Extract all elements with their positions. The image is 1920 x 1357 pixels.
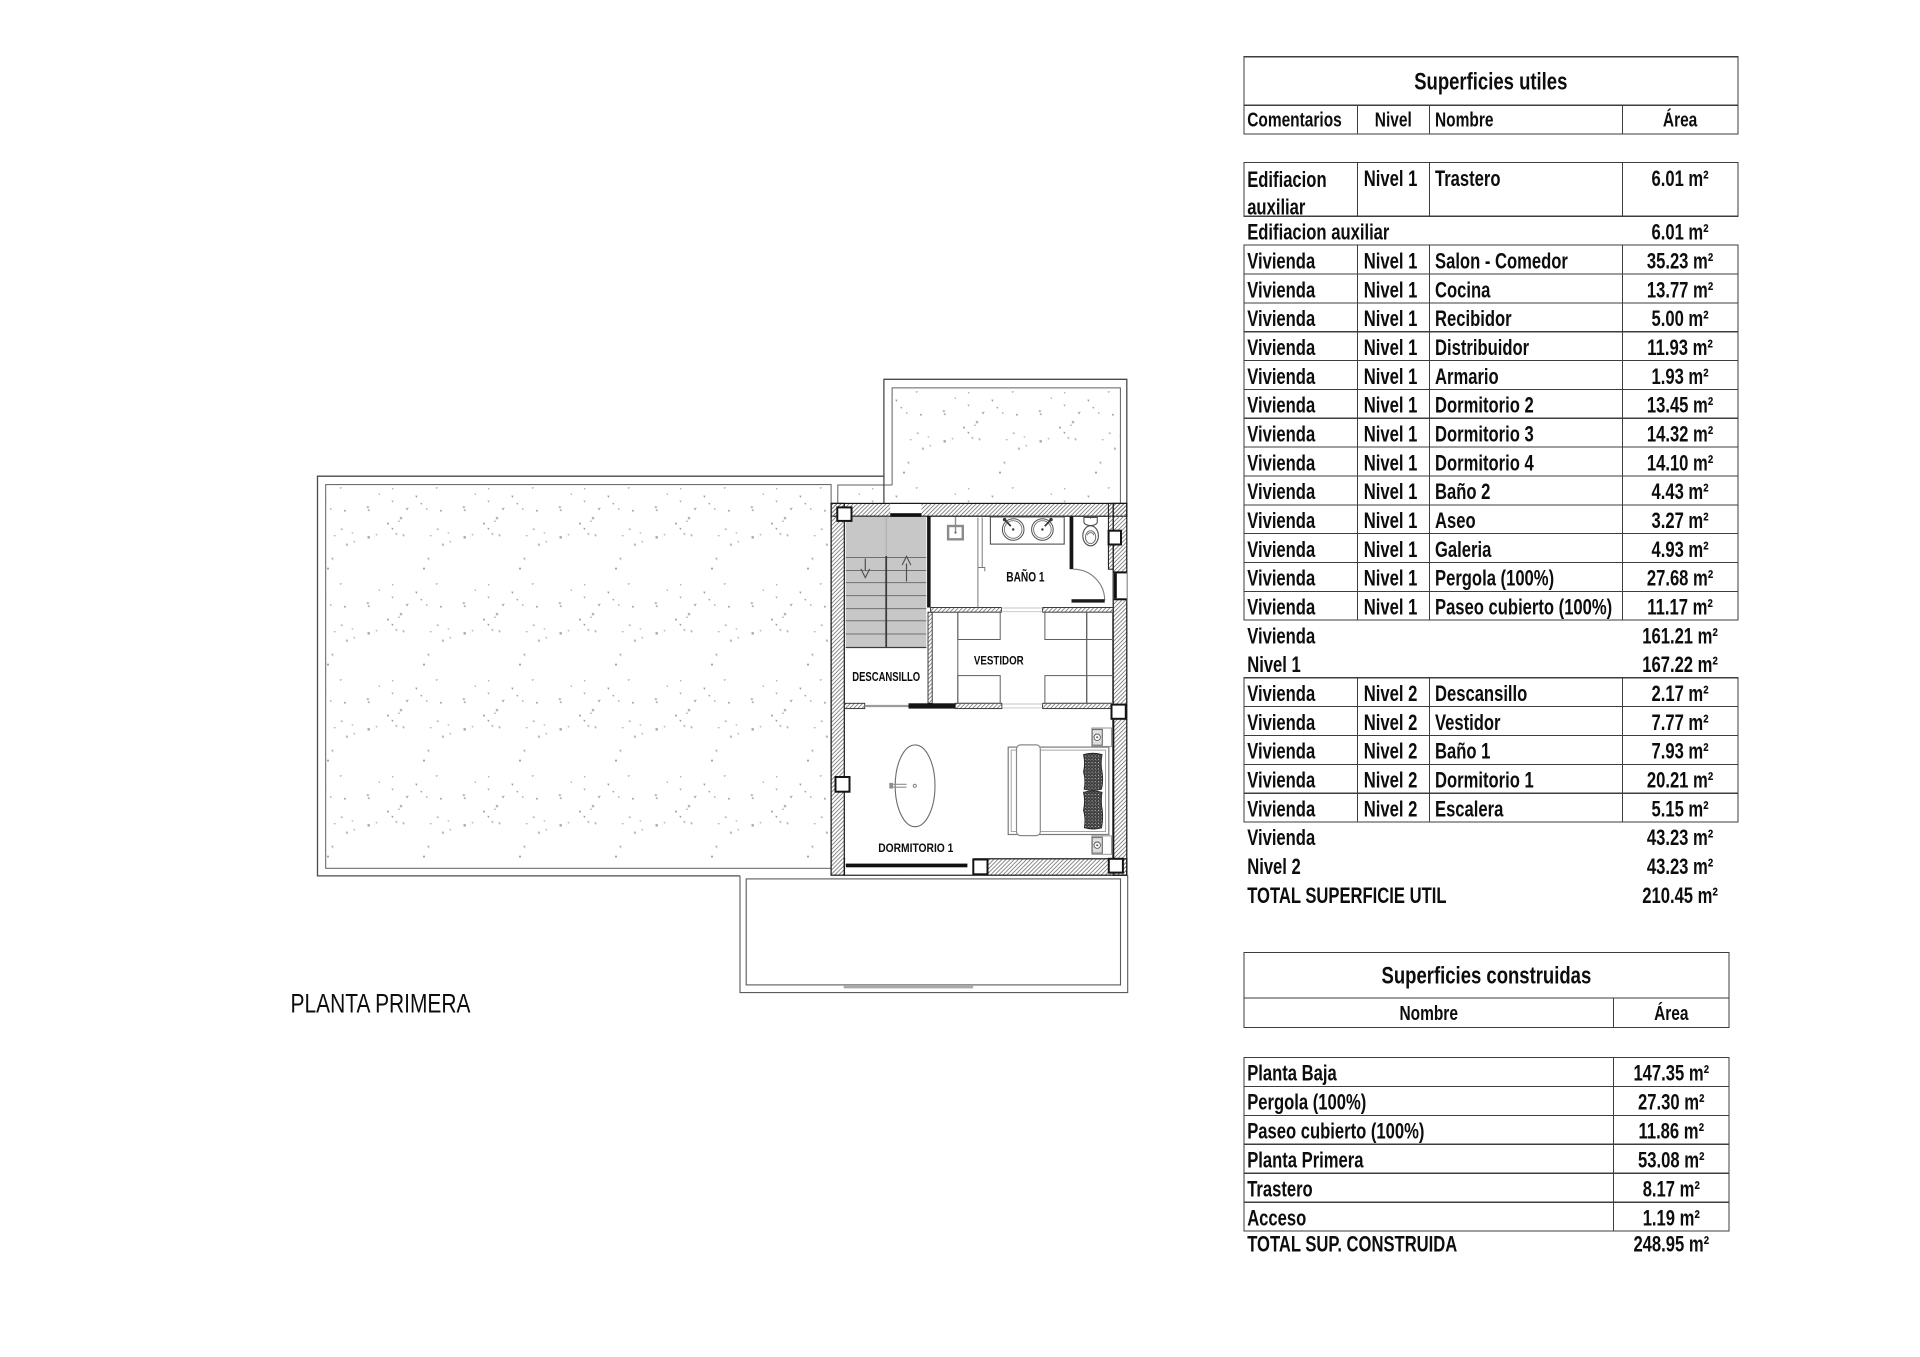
svg-text:Nivel 2: Nivel 2 bbox=[1364, 681, 1418, 706]
svg-text:Paseo cubierto (100%): Paseo cubierto (100%) bbox=[1247, 1119, 1424, 1144]
svg-text:Dormitorio 4: Dormitorio 4 bbox=[1435, 450, 1534, 475]
svg-text:2.17 m²: 2.17 m² bbox=[1652, 681, 1709, 706]
svg-text:Paseo cubierto (100%): Paseo cubierto (100%) bbox=[1435, 595, 1612, 620]
svg-text:11.93 m²: 11.93 m² bbox=[1647, 335, 1713, 360]
svg-text:Superficies construidas: Superficies construidas bbox=[1382, 963, 1592, 990]
svg-text:Escalera: Escalera bbox=[1435, 796, 1504, 821]
svg-text:35.23 m²: 35.23 m² bbox=[1647, 248, 1714, 273]
svg-text:Nivel 1: Nivel 1 bbox=[1364, 479, 1418, 504]
svg-text:Aseo: Aseo bbox=[1435, 508, 1476, 533]
svg-text:Vivienda: Vivienda bbox=[1247, 450, 1316, 475]
svg-text:Vivienda: Vivienda bbox=[1247, 248, 1316, 273]
svg-text:PLANTA PRIMERA: PLANTA PRIMERA bbox=[291, 989, 471, 1019]
svg-text:Nivel 1: Nivel 1 bbox=[1364, 566, 1418, 591]
svg-text:161.21 m²: 161.21 m² bbox=[1642, 623, 1718, 648]
svg-text:4.43 m²: 4.43 m² bbox=[1652, 479, 1709, 504]
svg-text:Nivel 2: Nivel 2 bbox=[1364, 739, 1418, 764]
svg-text:Nivel 1: Nivel 1 bbox=[1364, 335, 1418, 360]
svg-text:Vivienda: Vivienda bbox=[1247, 277, 1316, 302]
svg-text:VESTIDOR: VESTIDOR bbox=[974, 654, 1024, 668]
svg-text:Vivienda: Vivienda bbox=[1247, 335, 1316, 360]
svg-text:Vivienda: Vivienda bbox=[1247, 306, 1316, 331]
svg-text:Nivel: Nivel bbox=[1375, 109, 1412, 132]
svg-text:7.93 m²: 7.93 m² bbox=[1652, 739, 1709, 764]
svg-text:Armario: Armario bbox=[1435, 364, 1499, 389]
svg-text:Distribuidor: Distribuidor bbox=[1435, 335, 1529, 360]
svg-text:14.32 m²: 14.32 m² bbox=[1647, 422, 1714, 447]
svg-text:Área: Área bbox=[1654, 1002, 1689, 1025]
svg-text:5.15 m²: 5.15 m² bbox=[1652, 796, 1709, 821]
svg-text:Galeria: Galeria bbox=[1435, 537, 1492, 562]
svg-text:27.68 m²: 27.68 m² bbox=[1647, 566, 1714, 591]
svg-text:Nivel 1: Nivel 1 bbox=[1364, 422, 1418, 447]
svg-text:Vivienda: Vivienda bbox=[1247, 595, 1316, 620]
svg-text:Superficies utiles: Superficies utiles bbox=[1414, 69, 1567, 96]
svg-text:Nivel 1: Nivel 1 bbox=[1364, 508, 1418, 533]
svg-text:Trastero: Trastero bbox=[1435, 166, 1501, 191]
svg-text:1.19 m²: 1.19 m² bbox=[1643, 1205, 1700, 1230]
svg-text:5.00 m²: 5.00 m² bbox=[1652, 306, 1709, 331]
svg-text:Trastero: Trastero bbox=[1247, 1177, 1313, 1202]
svg-text:Baño 2: Baño 2 bbox=[1435, 479, 1490, 504]
svg-text:Vivienda: Vivienda bbox=[1247, 566, 1316, 591]
svg-text:Nivel 2: Nivel 2 bbox=[1247, 854, 1301, 879]
svg-text:43.23 m²: 43.23 m² bbox=[1647, 854, 1714, 879]
svg-text:Vestidor: Vestidor bbox=[1435, 710, 1501, 735]
svg-text:Nombre: Nombre bbox=[1399, 1002, 1458, 1025]
svg-text:6.01 m²: 6.01 m² bbox=[1652, 166, 1709, 191]
svg-text:248.95 m²: 248.95 m² bbox=[1633, 1232, 1709, 1257]
svg-text:Edifiacion auxiliar: Edifiacion auxiliar bbox=[1247, 220, 1390, 245]
svg-text:Nivel 1: Nivel 1 bbox=[1364, 166, 1418, 191]
svg-text:Salon - Comedor: Salon - Comedor bbox=[1435, 248, 1568, 273]
svg-text:Vivienda: Vivienda bbox=[1247, 393, 1316, 418]
svg-text:Nivel 1: Nivel 1 bbox=[1364, 595, 1418, 620]
svg-text:Vivienda: Vivienda bbox=[1247, 710, 1316, 735]
svg-text:Pergola (100%): Pergola (100%) bbox=[1247, 1090, 1366, 1115]
svg-text:210.45 m²: 210.45 m² bbox=[1642, 883, 1718, 908]
svg-text:Dormitorio 3: Dormitorio 3 bbox=[1435, 422, 1534, 447]
svg-text:DESCANSILLO: DESCANSILLO bbox=[852, 670, 920, 684]
svg-text:1.93 m²: 1.93 m² bbox=[1652, 364, 1709, 389]
svg-text:27.30 m²: 27.30 m² bbox=[1638, 1090, 1705, 1115]
svg-text:3.27 m²: 3.27 m² bbox=[1652, 508, 1709, 533]
svg-text:Nivel 2: Nivel 2 bbox=[1364, 796, 1418, 821]
svg-text:13.45 m²: 13.45 m² bbox=[1647, 393, 1714, 418]
svg-text:auxiliar: auxiliar bbox=[1247, 194, 1306, 219]
svg-text:167.22 m²: 167.22 m² bbox=[1642, 652, 1718, 677]
svg-text:DORMITORIO 1: DORMITORIO 1 bbox=[878, 841, 953, 855]
svg-text:TOTAL SUP. CONSTRUIDA: TOTAL SUP. CONSTRUIDA bbox=[1247, 1232, 1457, 1257]
svg-text:Nivel 1: Nivel 1 bbox=[1364, 306, 1418, 331]
svg-text:147.35 m²: 147.35 m² bbox=[1633, 1061, 1709, 1086]
svg-text:Comentarios: Comentarios bbox=[1247, 109, 1342, 132]
svg-text:Dormitorio 1: Dormitorio 1 bbox=[1435, 768, 1534, 793]
svg-text:7.77 m²: 7.77 m² bbox=[1652, 710, 1709, 735]
svg-text:Recibidor: Recibidor bbox=[1435, 306, 1512, 331]
svg-text:Vivienda: Vivienda bbox=[1247, 422, 1316, 447]
svg-text:Nivel 1: Nivel 1 bbox=[1247, 652, 1301, 677]
svg-text:Vivienda: Vivienda bbox=[1247, 768, 1316, 793]
svg-text:Cocina: Cocina bbox=[1435, 277, 1491, 302]
svg-text:BAÑO 1: BAÑO 1 bbox=[1006, 569, 1045, 584]
svg-text:Nivel 1: Nivel 1 bbox=[1364, 277, 1418, 302]
svg-text:Edifiacion: Edifiacion bbox=[1247, 167, 1326, 192]
svg-text:TOTAL SUPERFICIE UTIL: TOTAL SUPERFICIE UTIL bbox=[1247, 883, 1446, 908]
svg-text:Vivienda: Vivienda bbox=[1247, 739, 1316, 764]
svg-text:Nivel 2: Nivel 2 bbox=[1364, 768, 1418, 793]
svg-text:11.17 m²: 11.17 m² bbox=[1647, 595, 1713, 620]
svg-text:Nivel 1: Nivel 1 bbox=[1364, 537, 1418, 562]
svg-text:Nivel 1: Nivel 1 bbox=[1364, 450, 1418, 475]
svg-text:Planta Baja: Planta Baja bbox=[1247, 1061, 1337, 1086]
svg-text:20.21 m²: 20.21 m² bbox=[1647, 768, 1714, 793]
svg-text:Vivienda: Vivienda bbox=[1247, 796, 1316, 821]
svg-text:Vivienda: Vivienda bbox=[1247, 479, 1316, 504]
svg-text:Baño 1: Baño 1 bbox=[1435, 739, 1490, 764]
svg-text:43.23 m²: 43.23 m² bbox=[1647, 825, 1714, 850]
svg-text:53.08 m²: 53.08 m² bbox=[1638, 1148, 1705, 1173]
svg-text:14.10 m²: 14.10 m² bbox=[1647, 450, 1714, 475]
svg-text:Vivienda: Vivienda bbox=[1247, 364, 1316, 389]
svg-text:Vivienda: Vivienda bbox=[1247, 681, 1316, 706]
svg-text:Pergola (100%): Pergola (100%) bbox=[1435, 566, 1554, 591]
svg-text:6.01 m²: 6.01 m² bbox=[1652, 220, 1709, 245]
svg-text:Dormitorio 2: Dormitorio 2 bbox=[1435, 393, 1534, 418]
svg-text:Nombre: Nombre bbox=[1435, 109, 1494, 132]
svg-text:Descansillo: Descansillo bbox=[1435, 681, 1527, 706]
svg-text:Planta Primera: Planta Primera bbox=[1247, 1148, 1364, 1173]
svg-text:13.77 m²: 13.77 m² bbox=[1647, 277, 1714, 302]
svg-text:Nivel 1: Nivel 1 bbox=[1364, 364, 1418, 389]
svg-text:Nivel 1: Nivel 1 bbox=[1364, 248, 1418, 273]
svg-text:4.93 m²: 4.93 m² bbox=[1652, 537, 1709, 562]
svg-text:Área: Área bbox=[1663, 109, 1698, 132]
svg-text:Vivienda: Vivienda bbox=[1247, 537, 1316, 562]
svg-text:11.86 m²: 11.86 m² bbox=[1639, 1119, 1705, 1144]
svg-text:Vivienda: Vivienda bbox=[1247, 623, 1316, 648]
svg-text:Vivienda: Vivienda bbox=[1247, 825, 1316, 850]
svg-text:Nivel 1: Nivel 1 bbox=[1364, 393, 1418, 418]
svg-text:Acceso: Acceso bbox=[1247, 1205, 1306, 1230]
svg-text:Vivienda: Vivienda bbox=[1247, 508, 1316, 533]
svg-text:8.17 m²: 8.17 m² bbox=[1643, 1177, 1700, 1202]
svg-text:Nivel 2: Nivel 2 bbox=[1364, 710, 1418, 735]
